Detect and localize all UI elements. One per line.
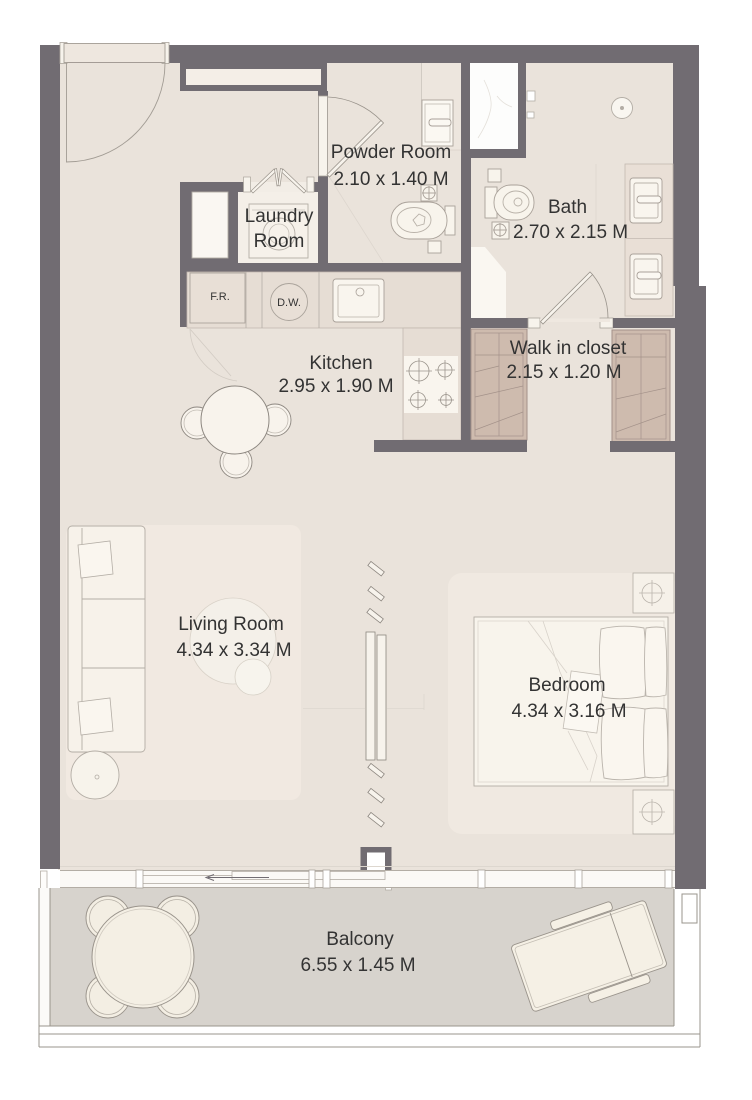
- svg-text:Bath: Bath: [548, 197, 587, 218]
- svg-text:2.95 x 1.90 M: 2.95 x 1.90 M: [278, 376, 393, 397]
- svg-text:2.70 x 2.15 M: 2.70 x 2.15 M: [513, 222, 628, 243]
- svg-text:F.R.: F.R.: [210, 291, 230, 303]
- svg-text:Bedroom: Bedroom: [528, 675, 605, 696]
- svg-text:4.34 x 3.34 M: 4.34 x 3.34 M: [176, 640, 291, 661]
- svg-text:Walk in closet: Walk in closet: [510, 338, 627, 359]
- svg-text:2.15 x 1.20 M: 2.15 x 1.20 M: [506, 362, 621, 383]
- svg-text:2.10 x 1.40 M: 2.10 x 1.40 M: [333, 169, 448, 190]
- svg-text:Kitchen: Kitchen: [309, 353, 372, 374]
- svg-text:6.55 x 1.45 M: 6.55 x 1.45 M: [300, 955, 415, 976]
- svg-text:Living Room: Living Room: [178, 614, 284, 635]
- svg-text:D.W.: D.W.: [277, 297, 301, 309]
- svg-text:Laundry: Laundry: [245, 206, 314, 227]
- svg-text:Room: Room: [254, 231, 305, 252]
- svg-text:4.34 x 3.16 M: 4.34 x 3.16 M: [511, 701, 626, 722]
- svg-text:Balcony: Balcony: [326, 929, 394, 950]
- svg-text:Powder Room: Powder Room: [331, 142, 451, 163]
